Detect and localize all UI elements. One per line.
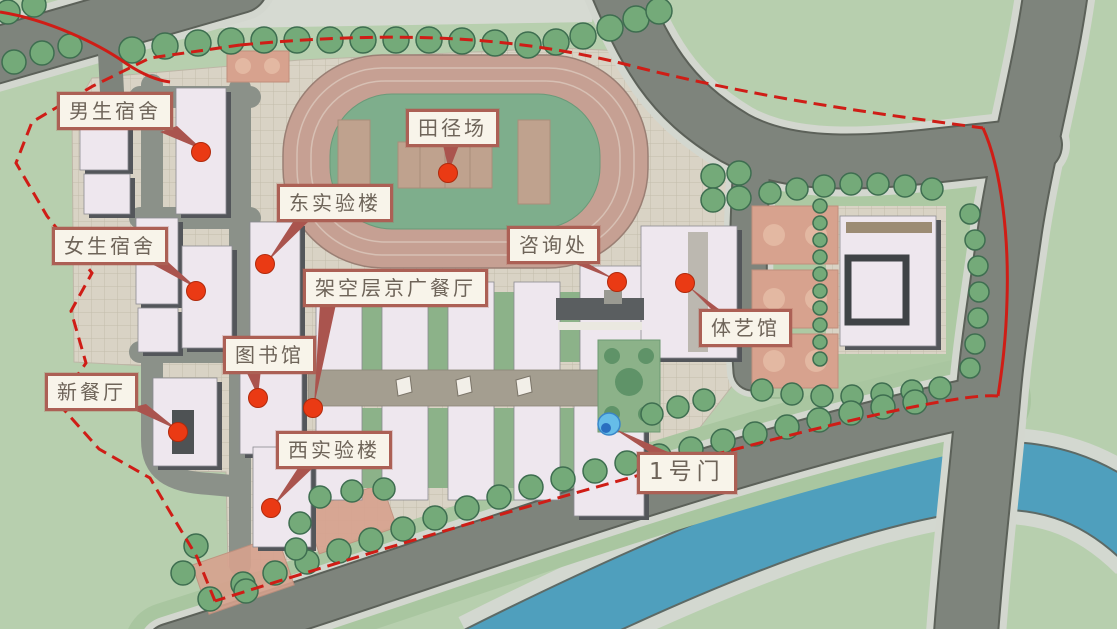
campus-map: 男生宿舍 田径场 东实验楼 女生宿舍 咨询处 架空层京广餐厅 图书馆 体艺馆 新…	[0, 0, 1117, 629]
map-label-west-lab: 西实验楼	[276, 431, 392, 469]
map-label-library: 图书馆	[223, 336, 316, 374]
map-label-girls-dorm: 女生宿舍	[52, 227, 168, 265]
map-label-consultation: 咨询处	[507, 226, 600, 264]
map-label-gate-1: 1号门	[637, 452, 737, 494]
map-label-stilt-canteen: 架空层京广餐厅	[303, 269, 488, 307]
map-label-east-lab: 东实验楼	[277, 184, 393, 222]
gate-1-marker	[598, 413, 620, 435]
map-label-gym: 体艺馆	[699, 309, 792, 347]
map-label-new-canteen: 新餐厅	[45, 373, 138, 411]
map-label-boys-dorm: 男生宿舍	[57, 92, 173, 130]
map-label-track-field: 田径场	[406, 109, 499, 147]
